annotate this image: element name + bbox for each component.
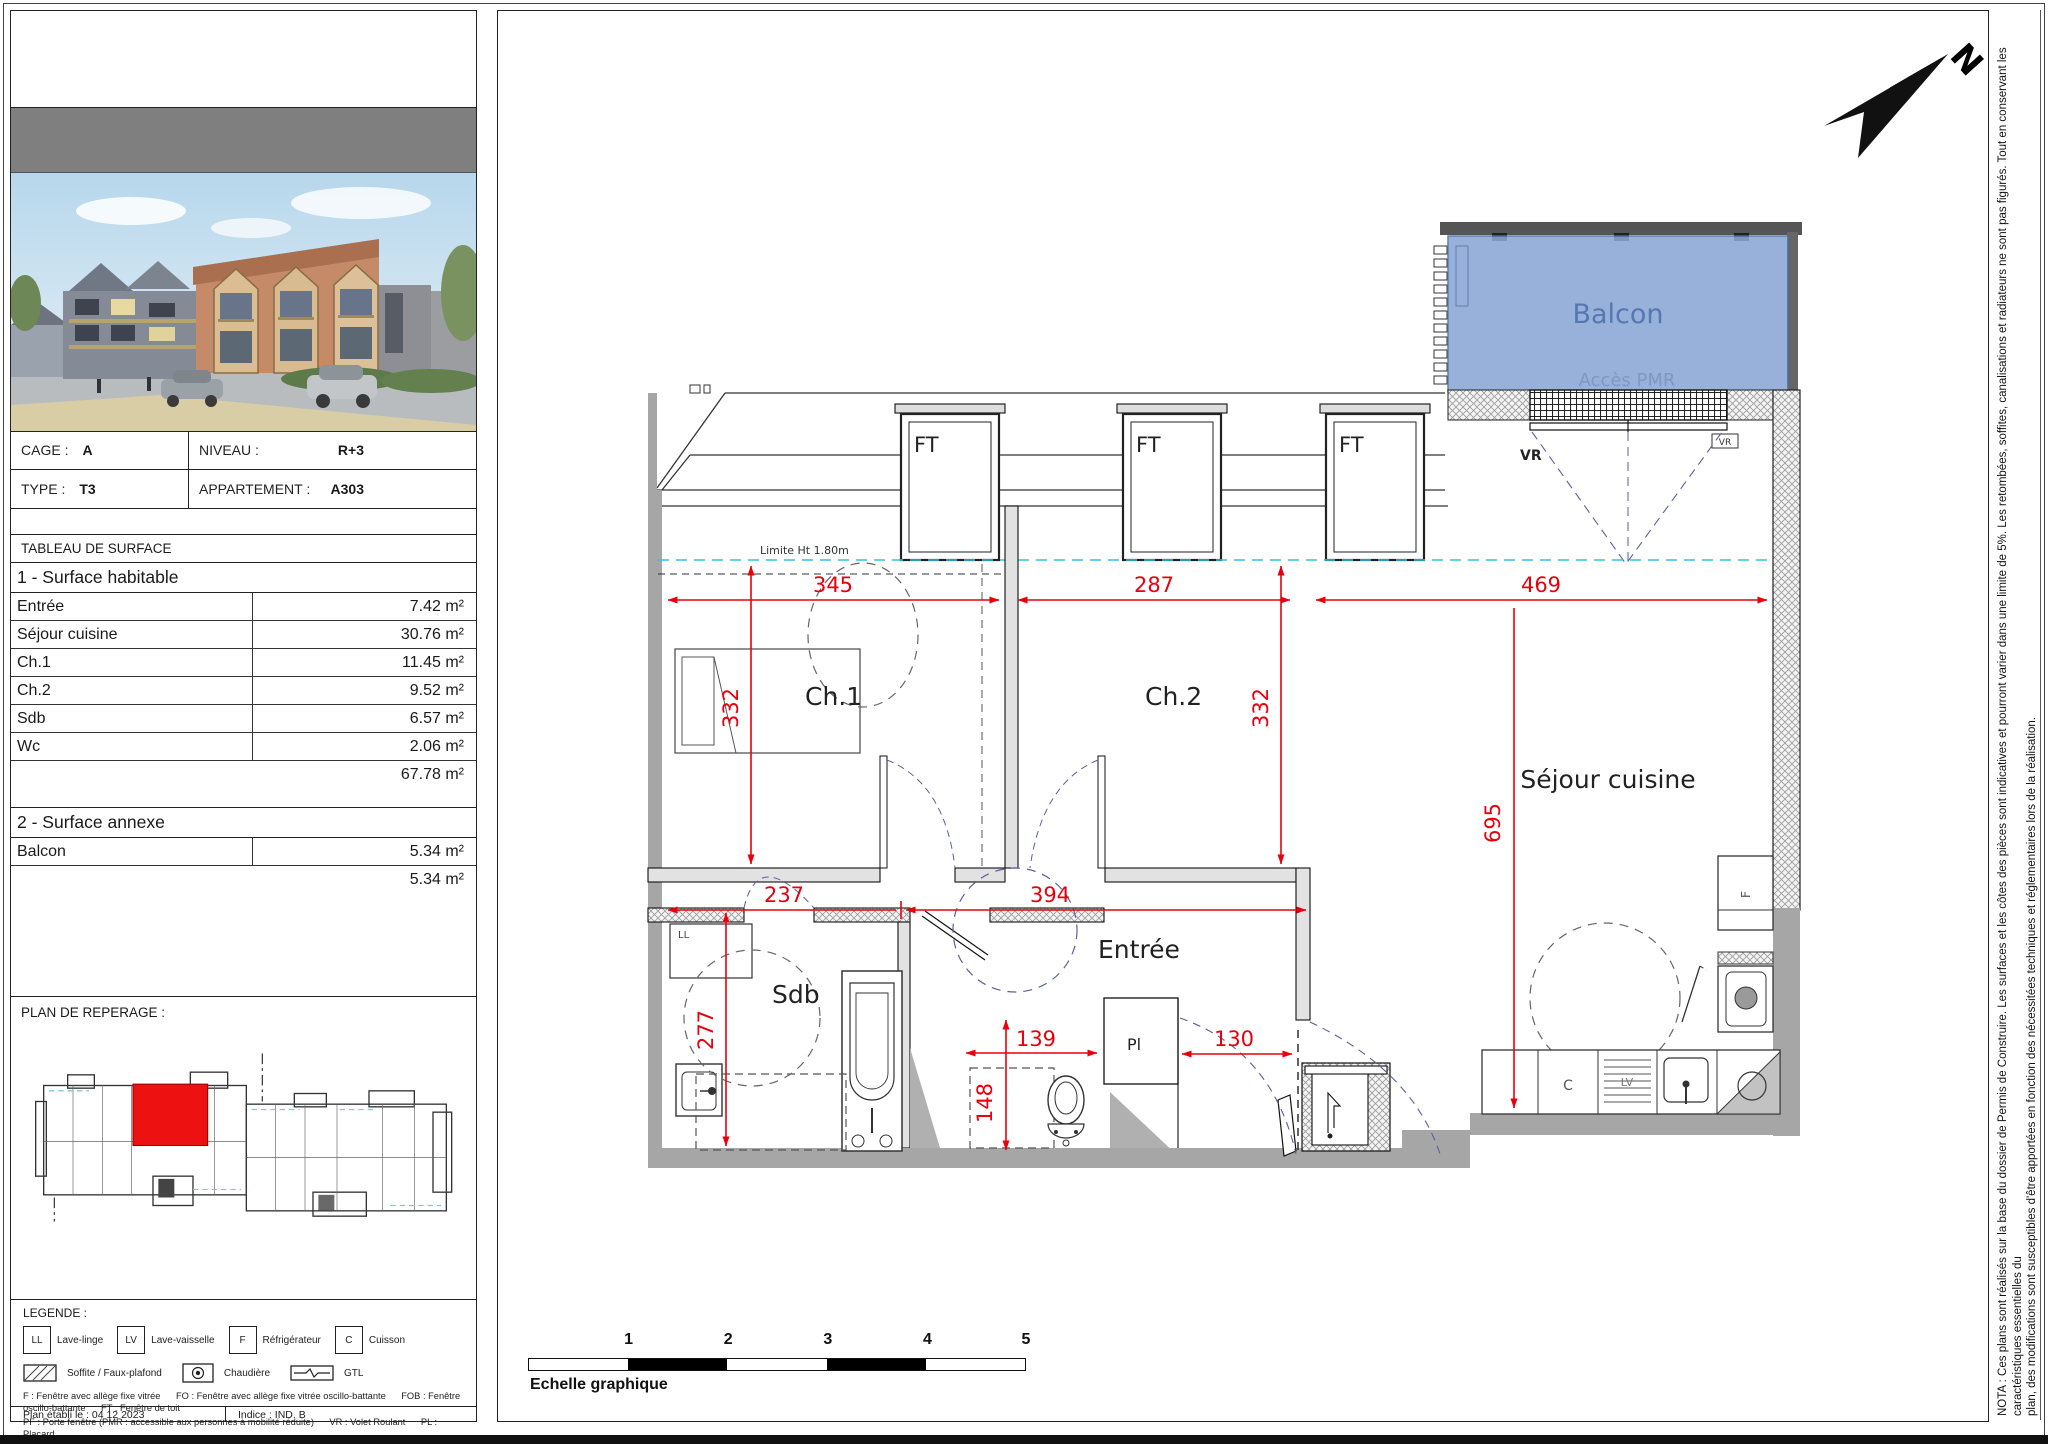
- nota-text: NOTA : Ces plans sont réalisés sur la ba…: [1996, 10, 2040, 1416]
- roof-window-ft: FT: [1117, 404, 1227, 560]
- scale-number: 5: [1022, 1331, 1031, 1349]
- row-label: Ch.2: [11, 677, 253, 704]
- table-row: Ch.2 9.52 m²: [11, 677, 476, 705]
- floor-plan-document: CAGE : A NIVEAU : R+3 TYPE : T3 APPARTEM…: [0, 0, 2048, 1444]
- fridge-icon: F: [229, 1326, 257, 1354]
- fridge-label: F: [1739, 891, 1753, 898]
- appartement-value: A303: [331, 481, 364, 497]
- balcony-door: VR VR: [1448, 390, 1775, 564]
- type-value: T3: [79, 481, 95, 497]
- vr-small-label: VR: [1719, 438, 1731, 448]
- room-ch1: Ch.1: [805, 682, 862, 711]
- roof-window-ft: FT: [1320, 404, 1430, 560]
- appliance-label: Réfrigérateur: [263, 1335, 321, 1346]
- room-entree: Entrée: [1098, 935, 1180, 964]
- dim-wc-width: 139: [1016, 1027, 1056, 1051]
- cage-label: CAGE :: [21, 442, 68, 458]
- indice: Indice : IND. B: [226, 1407, 306, 1422]
- symbol-label: Soffite / Faux-plafond: [67, 1368, 162, 1379]
- building-photo: [11, 173, 476, 432]
- room-ch2: Ch.2: [1145, 682, 1202, 711]
- legend-appliances: LL Lave-linge LV Lave-vaisselle F Réfrig…: [11, 1320, 476, 1354]
- north-arrow: N: [1824, 36, 1987, 158]
- ll-label: LL: [678, 930, 690, 941]
- acces-pmr-label: Accès PMR: [1579, 370, 1676, 391]
- nota-line-1: NOTA : Ces plans sont réalisés sur la ba…: [1996, 10, 2025, 1416]
- plan-date: Plan établi le : 04 12 2023: [11, 1407, 226, 1422]
- scale-label: Echelle graphique: [530, 1376, 668, 1394]
- washer-icon: LL: [23, 1326, 51, 1354]
- appliance-label: Lave-vaisselle: [151, 1335, 214, 1346]
- type-label: TYPE :: [21, 481, 65, 497]
- reperage-title: PLAN DE REPERAGE :: [11, 997, 476, 1020]
- dim-ch1-width: 345: [813, 573, 853, 597]
- ft-label: FT: [1339, 433, 1364, 457]
- row-value: 11.45 m²: [253, 649, 476, 676]
- row-value: 9.52 m²: [253, 677, 476, 704]
- cooktop-icon: C: [335, 1326, 363, 1354]
- dim-hall-width: 394: [1030, 883, 1070, 907]
- dim-ch2-width: 287: [1134, 573, 1174, 597]
- scale-number: 1: [624, 1331, 633, 1349]
- row-label: Sdb: [11, 705, 253, 732]
- dim-ch1-height: 332: [719, 688, 743, 728]
- legend-footer: Plan établi le : 04 12 2023 Indice : IND…: [11, 1406, 476, 1422]
- wall-right: [1773, 390, 1800, 910]
- table-row: Balcon 5.34 m²: [11, 838, 476, 866]
- habitable-total: 67.78 m²: [11, 761, 476, 788]
- legend-title: LEGENDE :: [11, 1300, 476, 1320]
- row-value: 5.34 m²: [253, 838, 476, 865]
- table-row: Wc 2.06 m²: [11, 733, 476, 761]
- annexe-total: 5.34 m²: [11, 866, 476, 893]
- boiler-icon: [182, 1363, 214, 1383]
- table-row: Entrée 7.42 m²: [11, 593, 476, 621]
- symbol-label: Chaudière: [224, 1368, 270, 1379]
- row-label: Balcon: [11, 838, 253, 865]
- row-value: 30.76 m²: [253, 621, 476, 648]
- row-value: 2.06 m²: [253, 733, 476, 760]
- north-label: N: [1942, 36, 1987, 84]
- row-value: 6.57 m²: [253, 705, 476, 732]
- surface-table: TABLEAU DE SURFACE 1 - Surface habitable…: [11, 534, 476, 893]
- legend: LEGENDE : LL Lave-linge LV Lave-vaissell…: [11, 1299, 476, 1407]
- legend-symbols: Soffite / Faux-plafond Chaudière GTL: [11, 1354, 476, 1383]
- room-sejour: Séjour cuisine: [1520, 765, 1695, 794]
- niveau-cell: NIVEAU : R+3: [189, 431, 476, 469]
- niveau-label: NIVEAU :: [199, 442, 259, 458]
- row-label: Séjour cuisine: [11, 621, 253, 648]
- floor-plan: N Balcon Accès PMR: [497, 10, 1987, 1420]
- row-label: Ch.1: [11, 649, 253, 676]
- dishwasher-label: LV: [1621, 1076, 1634, 1089]
- cage-value: A: [82, 442, 92, 458]
- appliance-label: Cuisson: [369, 1335, 405, 1346]
- pmr-circles: [684, 563, 1680, 1086]
- title-block-empty: [11, 11, 476, 108]
- wall-left: [648, 490, 662, 1166]
- scale-number: 4: [923, 1331, 932, 1349]
- table-row: Sdb 6.57 m²: [11, 705, 476, 733]
- appartement-cell: APPARTEMENT : A303: [189, 470, 476, 508]
- building-photo-illustration: [11, 173, 476, 431]
- gtl-icon: [290, 1365, 334, 1381]
- dim-ch2-height: 332: [1249, 688, 1273, 728]
- type-cell: TYPE : T3: [11, 470, 189, 508]
- table-row: Ch.1 11.45 m²: [11, 649, 476, 677]
- row-label: Entrée: [11, 593, 253, 620]
- pl-label: Pl: [1127, 1035, 1141, 1054]
- reperage-section: PLAN DE REPERAGE :: [11, 996, 476, 1228]
- nota-line-2: plan, des modifications sont susceptible…: [2025, 10, 2040, 1416]
- table-row: Séjour cuisine 30.76 m²: [11, 621, 476, 649]
- gray-band: [11, 108, 476, 174]
- limit-label: Limite Ht 1.80m: [760, 544, 849, 557]
- ft-label: FT: [914, 433, 939, 457]
- ft-label: FT: [1136, 433, 1161, 457]
- dim-sejour-width: 469: [1521, 573, 1561, 597]
- mini-plan: [33, 1048, 473, 1223]
- appliance-label: Lave-linge: [57, 1335, 103, 1346]
- wall: [648, 393, 657, 493]
- surface-section-1: 1 - Surface habitable: [11, 563, 476, 593]
- dim-sdb-height: 277: [694, 1010, 718, 1050]
- dim-sdb-width: 237: [764, 883, 804, 907]
- cage-cell: CAGE : A: [11, 431, 189, 469]
- cooktop-label: C: [1563, 1078, 1573, 1094]
- row-label: Wc: [11, 733, 253, 760]
- room-sdb: Sdb: [772, 980, 820, 1009]
- bottom-black-bar: [0, 1435, 2048, 1444]
- surface-table-title: TABLEAU DE SURFACE: [11, 534, 476, 563]
- surface-section-2: 2 - Surface annexe: [11, 807, 476, 838]
- niveau-value: R+3: [338, 442, 364, 458]
- sidebar: CAGE : A NIVEAU : R+3 TYPE : T3 APPARTEM…: [10, 10, 477, 1422]
- dim-sejour-height: 695: [1481, 803, 1505, 843]
- balcony-label: Balcon: [1572, 299, 1663, 330]
- apartment-info-table: CAGE : A NIVEAU : R+3 TYPE : T3 APPARTEM…: [11, 431, 476, 507]
- dishwasher-icon: LV: [117, 1326, 145, 1354]
- dim-entree-width: 130: [1214, 1027, 1254, 1051]
- highlighted-apartment: [133, 1084, 208, 1145]
- kitchen: C LV F: [1482, 856, 1780, 1114]
- dim-wc-height: 148: [973, 1083, 997, 1123]
- row-value: 7.42 m²: [253, 593, 476, 620]
- partitions: Pl: [648, 506, 1310, 1156]
- bottom-walls: [648, 1113, 1800, 1168]
- nota-column: NOTA : Ces plans sont réalisés sur la ba…: [1992, 10, 2041, 1420]
- appartement-label: APPARTEMENT :: [199, 481, 310, 497]
- symbol-label: GTL: [344, 1368, 363, 1379]
- scale-number: 3: [823, 1331, 832, 1349]
- soffit-hatch-icon: [23, 1364, 57, 1382]
- scale-number: 2: [724, 1331, 733, 1349]
- roof-window-ft: FT: [895, 404, 1005, 560]
- scale-bar: 1 2 3 4 5: [528, 1358, 1026, 1371]
- vr-label: VR: [1520, 448, 1542, 464]
- balcony: Balcon Accès PMR: [1434, 222, 1802, 394]
